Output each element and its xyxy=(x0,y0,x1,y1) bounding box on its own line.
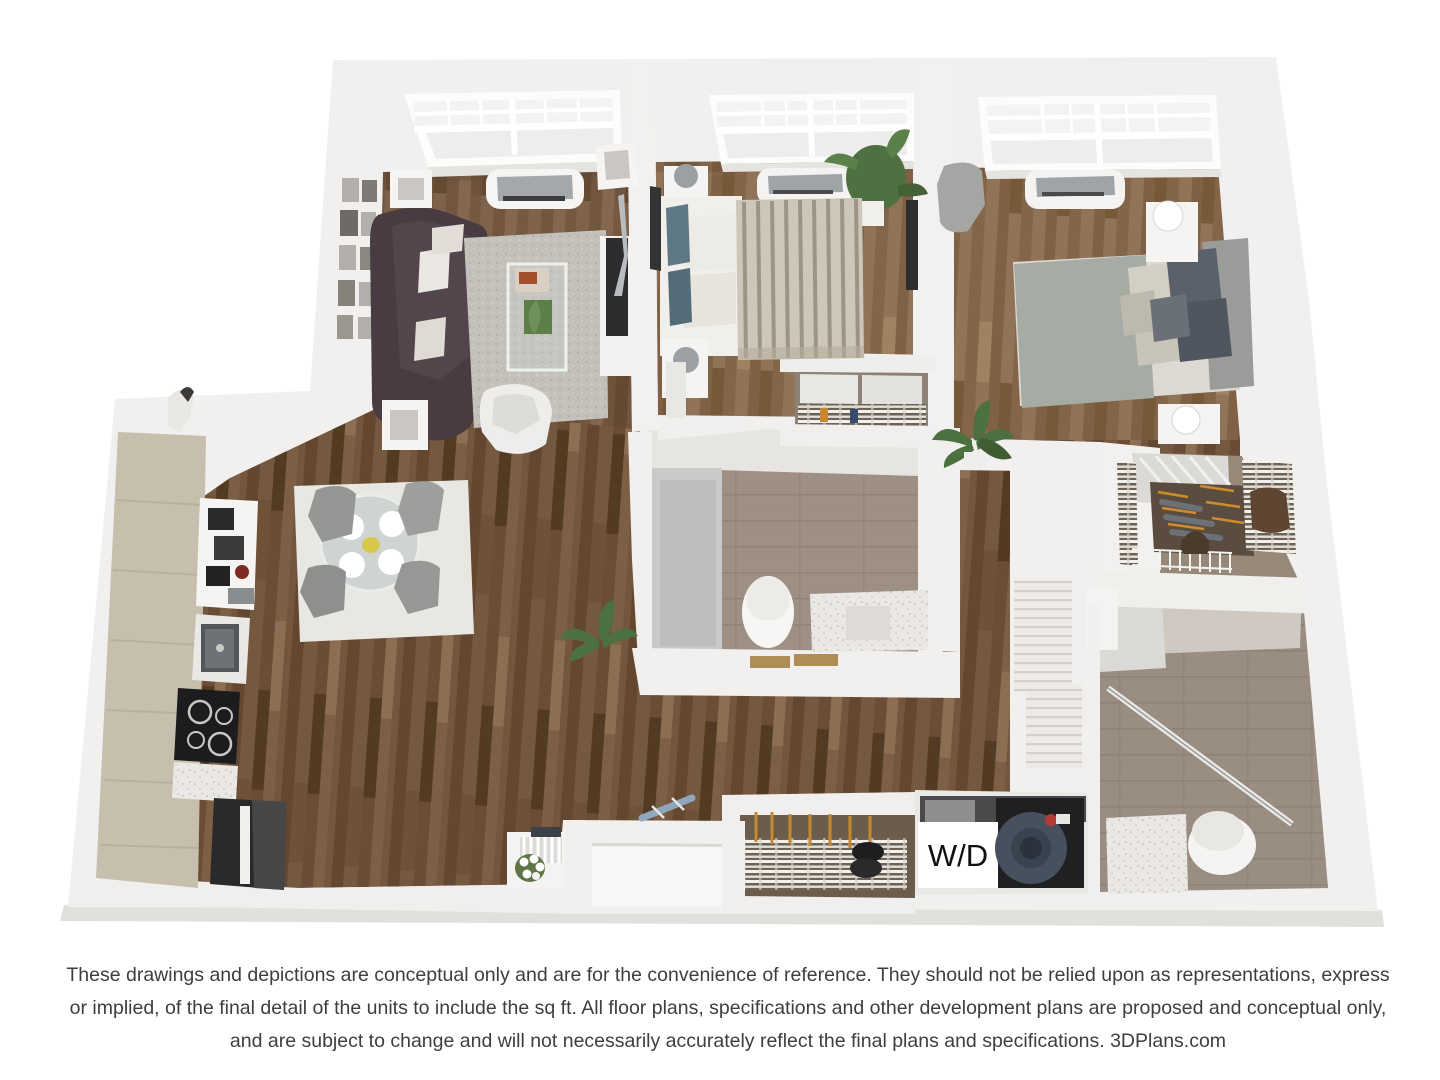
svg-text:W/D: W/D xyxy=(928,838,988,873)
